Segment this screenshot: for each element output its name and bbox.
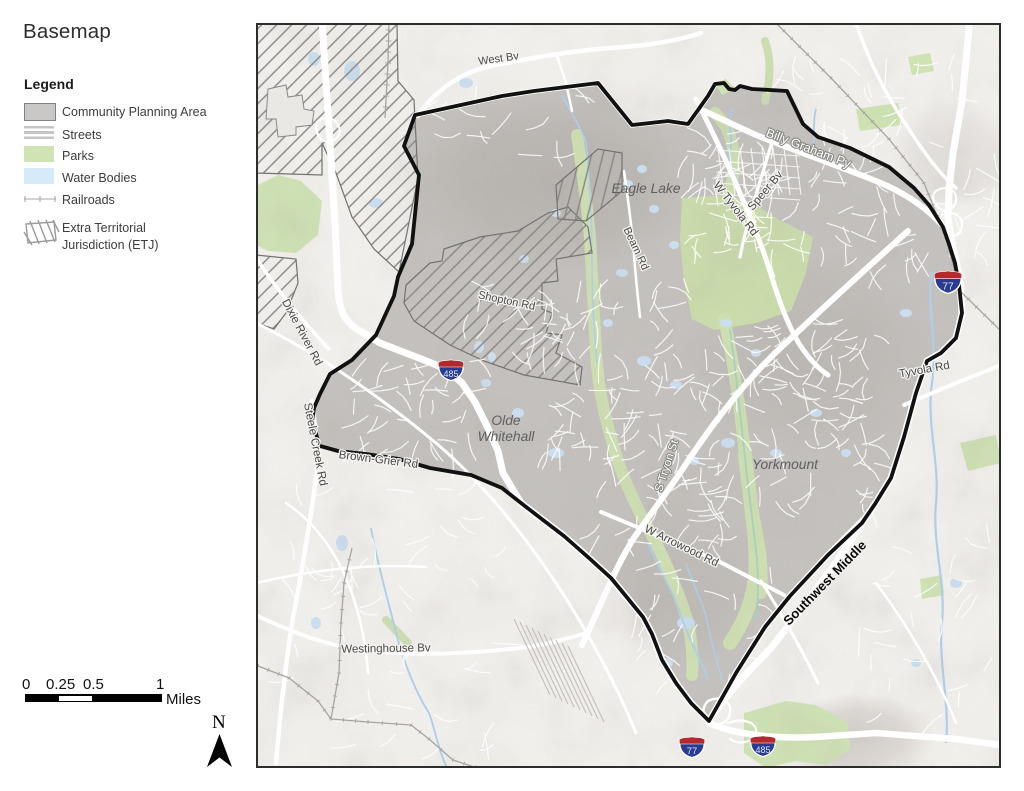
svg-text:77: 77 [942, 281, 954, 292]
svg-text:Whitehall: Whitehall [478, 429, 536, 444]
svg-text:485: 485 [755, 745, 770, 755]
svg-text:Eagle Lake: Eagle Lake [611, 181, 680, 196]
svg-text:Olde: Olde [491, 413, 520, 428]
svg-text:77: 77 [687, 746, 698, 757]
svg-text:Yorkmount: Yorkmount [752, 457, 819, 472]
svg-text:485: 485 [443, 369, 458, 379]
svg-text:Westinghouse Bv: Westinghouse Bv [341, 642, 431, 656]
